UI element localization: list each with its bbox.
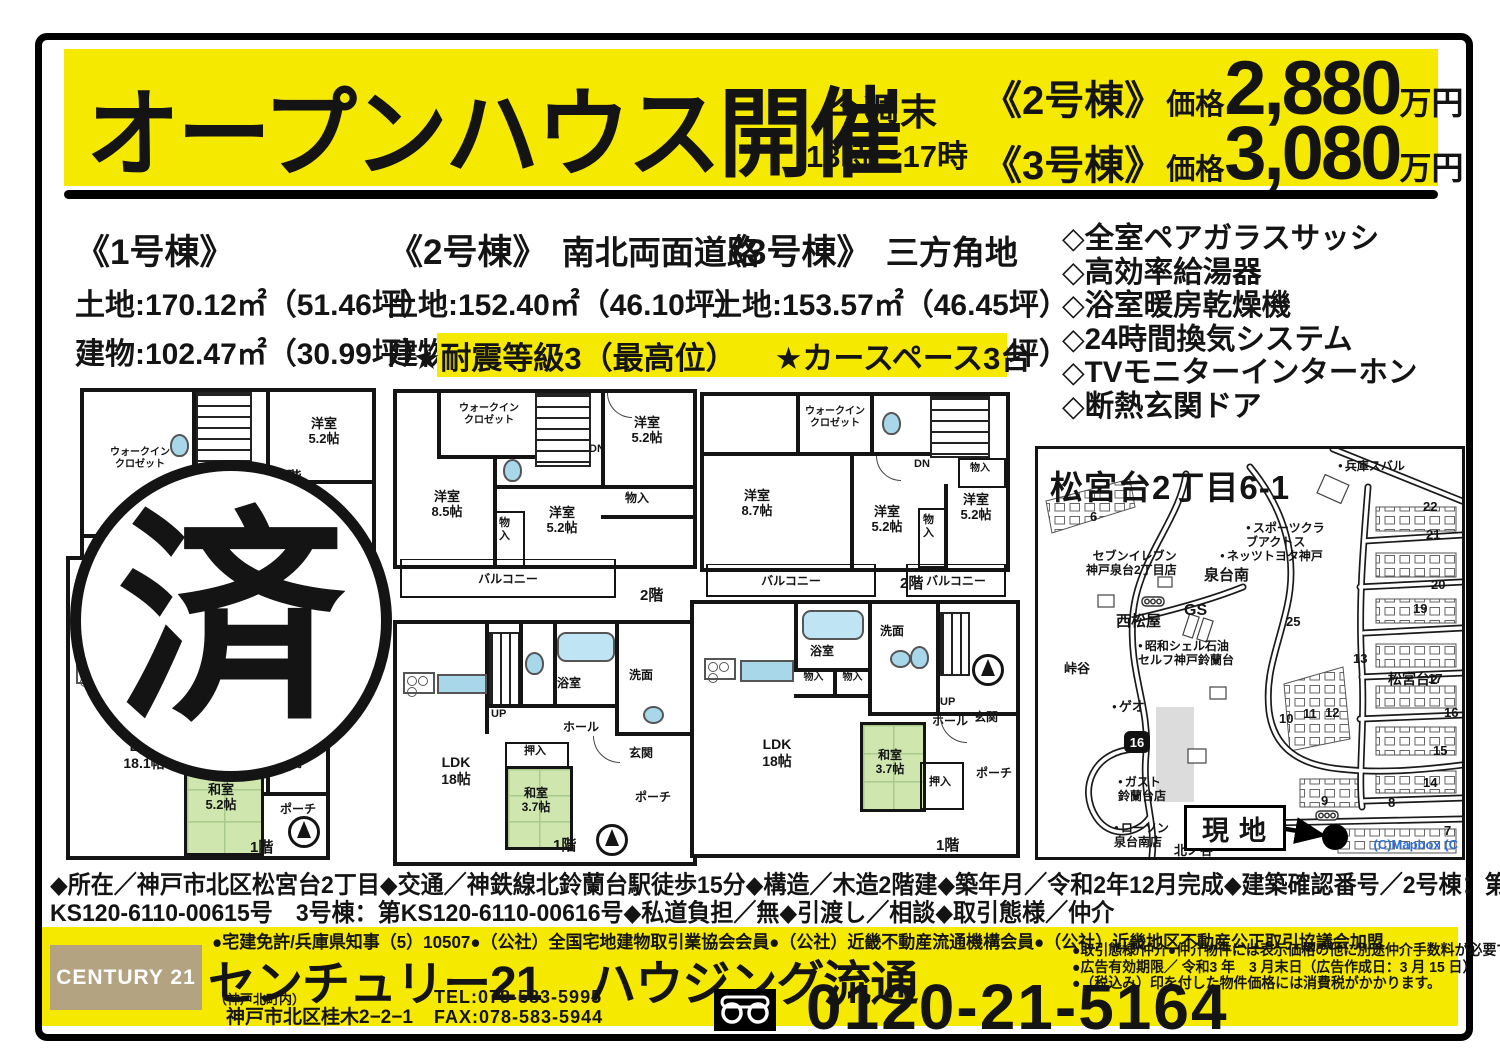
room-label: 和室 3.7帖 bbox=[505, 786, 567, 814]
room-label: 浴室 bbox=[810, 644, 834, 658]
room-label: 洋室 5.2帖 bbox=[527, 505, 597, 536]
price-row-3: 《3号棟》 価格 3,080 万円 bbox=[982, 120, 1463, 191]
room-label: UP bbox=[491, 708, 506, 721]
floor-label: 2階 bbox=[640, 584, 663, 605]
room-label: 押入 bbox=[505, 745, 565, 758]
room-label: ホール bbox=[563, 720, 599, 734]
price-unit: 万円 bbox=[1399, 78, 1463, 124]
kitchen-counter bbox=[437, 674, 487, 694]
floor-label: 1階 bbox=[250, 836, 273, 857]
room-label: バルコニー bbox=[926, 572, 986, 589]
map-block-number: 11 bbox=[1303, 706, 1317, 721]
map-poi: ガスト 鈴蘭台店 bbox=[1118, 775, 1166, 804]
building1-info: 《1号棟》 土地:170.12㎡（51.46坪） 建物:102.47㎡（30.9… bbox=[75, 224, 432, 373]
stairs-icon bbox=[489, 632, 521, 706]
room-label: 洋室 5.2帖 bbox=[946, 492, 1006, 523]
floorplan-b3-1f: 浴室 洗面 物入 物入 UP ホール LDK 18帖 和室 3.7帖 押入 玄関… bbox=[690, 600, 1020, 858]
equipment-item: ◇TVモニターインターホン bbox=[1062, 356, 1417, 390]
building1-name: 《1号棟》 bbox=[75, 224, 234, 275]
map-poi: ネッツトヨタ神戸 bbox=[1220, 549, 1323, 563]
building1-land: 土地:170.12㎡（51.46坪） bbox=[75, 280, 432, 324]
door-arc bbox=[593, 736, 620, 763]
kitchen-counter bbox=[740, 660, 794, 682]
century21-logo: CENTURY 21 bbox=[50, 945, 202, 1010]
room-label: LDK 18帖 bbox=[742, 736, 812, 769]
property-details-line2: KS120-6110-00615号 3号棟：第KS120-6110-00616号… bbox=[50, 894, 1114, 929]
wall bbox=[833, 668, 837, 694]
equipment-item: ◇高効率給湯器 bbox=[1062, 256, 1417, 290]
wall bbox=[601, 515, 693, 519]
map-block-number: 15 bbox=[1433, 743, 1447, 758]
room-label: 和室 3.7帖 bbox=[860, 748, 920, 776]
footer-note: ●取引態様/仲介●仲介物件には表示価格の他に別途仲介手数料が必要です。 bbox=[1072, 943, 1500, 960]
room-label: LDK 18帖 bbox=[421, 754, 491, 787]
wall bbox=[615, 732, 693, 736]
floor-label: 2階 bbox=[900, 572, 923, 593]
sink-icon bbox=[643, 706, 664, 724]
highlight-quake: ★耐震等級3（最高位） bbox=[413, 333, 737, 378]
sold-stamp: 済 bbox=[70, 460, 392, 782]
room-label: 洗面 bbox=[629, 668, 653, 682]
room-label: 洋室 8.7帖 bbox=[714, 488, 800, 519]
footer-note: ●広告有効期限／ 令和3 年 3 月末日（広告作成日：3 月 15 日） bbox=[1072, 960, 1500, 977]
room-label: DN bbox=[914, 458, 930, 471]
map-block-number: 8 bbox=[1388, 795, 1395, 810]
room-label: 物入 bbox=[625, 491, 649, 505]
price-building-name: 《3号棟》 bbox=[982, 133, 1164, 191]
footer: ●宅建免許/兵庫県知事（5）10507●（公社）全国宅地建物取引業協会会員●（公… bbox=[42, 927, 1458, 1026]
map-title: 松宮台2丁目6-1 bbox=[1050, 461, 1290, 509]
map-block-number: 12 bbox=[1325, 705, 1339, 720]
room-label: 玄関 bbox=[629, 746, 653, 760]
map-poi: ローソン 泉台南店 bbox=[1114, 821, 1169, 850]
map-block-number: 10 bbox=[1279, 711, 1293, 726]
toilet-icon bbox=[503, 459, 522, 482]
floor-label: 1階 bbox=[936, 834, 959, 855]
map-poi: スポーツクラ ブアクトス bbox=[1246, 521, 1325, 550]
room-label: ポーチ bbox=[635, 790, 671, 804]
room-label: 浴室 bbox=[557, 676, 581, 690]
room-label: 物入 bbox=[833, 672, 872, 684]
building3-feature: 三方角地 bbox=[886, 226, 1018, 274]
map-block-number: 14 bbox=[1423, 775, 1437, 790]
room-label: 洗面 bbox=[880, 624, 904, 638]
map-block-number: 9 bbox=[1321, 793, 1328, 808]
route-16-badge: 16 bbox=[1124, 731, 1150, 753]
stove-icon bbox=[403, 672, 435, 694]
map-block-number: 25 bbox=[1286, 614, 1300, 629]
room-label: UP bbox=[940, 696, 955, 709]
bathtub-icon bbox=[802, 610, 864, 640]
wall bbox=[794, 604, 798, 668]
compass-icon bbox=[596, 824, 628, 856]
wall bbox=[485, 704, 617, 708]
header-divider bbox=[64, 190, 1438, 199]
room-label: 洋室 5.2帖 bbox=[609, 415, 685, 446]
wall bbox=[553, 624, 557, 704]
wall bbox=[796, 396, 800, 452]
room-label: バルコニー bbox=[761, 572, 821, 589]
page-title: オープンハウス開催 bbox=[86, 55, 901, 196]
floorplan-b3-2f: DN 物入 ウォークイン クロゼット 洋室 8.7帖 洋室 5.2帖 物 入 洋… bbox=[700, 392, 1010, 572]
footer-note: ●（税込み）印を付した物件価格には消費税がかかります。 bbox=[1072, 976, 1500, 993]
footer-notes: ●取引態様/仲介●仲介物件には表示価格の他に別途仲介手数料が必要です。 ●広告有… bbox=[1072, 943, 1500, 993]
map-poi: 西松屋 bbox=[1116, 613, 1161, 631]
schedule-hours: 13時〜17時 bbox=[806, 131, 968, 176]
room-label: 物 入 bbox=[923, 514, 934, 540]
location-map: 松宮台2丁目6-1 兵庫スバル スポーツクラ ブアクトス ネッツトヨタ神戸 セブ… bbox=[1035, 446, 1465, 860]
toilet-icon bbox=[525, 652, 544, 675]
room-label: 物入 bbox=[794, 672, 833, 684]
room-label: バルコニー bbox=[478, 570, 538, 587]
equipment-item: ◇24時間換気システム bbox=[1062, 323, 1417, 357]
map-block-number: 21 bbox=[1426, 527, 1440, 542]
freedial-icon bbox=[714, 989, 776, 1031]
price-label: 価格 bbox=[1166, 81, 1224, 123]
floor-label: 1階 bbox=[553, 834, 576, 855]
fax-number: FAX:078-583-5944 bbox=[434, 1007, 603, 1028]
price-label: 価格 bbox=[1166, 146, 1224, 188]
stairs-icon bbox=[940, 612, 970, 676]
room-label: ポーチ bbox=[280, 802, 316, 816]
room-label: 押入 bbox=[922, 776, 958, 789]
schedule-weekend: 今週末 bbox=[826, 82, 937, 136]
compass-icon bbox=[288, 816, 320, 848]
equipment-item: ◇浴室暖房乾燥機 bbox=[1062, 289, 1417, 323]
room-label: 物 入 bbox=[499, 517, 510, 543]
wall bbox=[437, 455, 535, 459]
room-label: DN bbox=[589, 443, 605, 456]
equipment-item: ◇断熱玄関ドア bbox=[1062, 390, 1417, 424]
map-poi: 昭和シェル石油 セルフ神戸鈴蘭台 bbox=[1138, 639, 1234, 668]
bathtub-icon bbox=[557, 632, 615, 662]
map-block-number: 6 bbox=[1090, 509, 1097, 524]
door-arc bbox=[876, 456, 901, 481]
balcony: バルコニー bbox=[706, 564, 876, 597]
map-poi: 泉台南 bbox=[1204, 567, 1249, 585]
floorplan-b2-2f: ウォークイン クロゼット DN 洋室 5.2帖 洋室 8.5帖 物入 洋室 5.… bbox=[393, 389, 697, 569]
room-label: ウォークイン クロゼット bbox=[92, 447, 188, 471]
wall bbox=[437, 393, 441, 457]
wall bbox=[601, 393, 605, 485]
wall bbox=[870, 396, 874, 452]
wall bbox=[601, 485, 693, 489]
map-block-number: 7 bbox=[1444, 823, 1451, 838]
building3-name: 《3号棟》 bbox=[712, 224, 871, 275]
room-label: ポーチ bbox=[976, 766, 1012, 780]
room-label: 玄関 bbox=[974, 710, 998, 724]
equipment-list: ◇全室ペアガラスサッシ ◇高効率給湯器 ◇浴室暖房乾燥機 ◇24時間換気システム… bbox=[1062, 222, 1417, 423]
room-label: ウォークイン クロゼット bbox=[802, 406, 868, 430]
map-poi: セブンイレブン 神戸泉台2丁目店 bbox=[1086, 549, 1177, 578]
balcony: バルコニー bbox=[400, 559, 616, 598]
toilet-icon bbox=[910, 646, 929, 669]
map-poi: 峠谷 bbox=[1064, 661, 1090, 677]
map-block-number: 22 bbox=[1423, 499, 1437, 514]
wall bbox=[493, 485, 603, 489]
wall bbox=[704, 452, 930, 456]
equipment-item: ◇全室ペアガラスサッシ bbox=[1062, 222, 1417, 256]
map-block-number: 16 bbox=[1444, 705, 1458, 720]
room-label: ウォークイン クロゼット bbox=[441, 403, 537, 427]
room-label: 物入 bbox=[958, 463, 1002, 475]
building1-building: 建物:102.47㎡（30.99坪） bbox=[75, 329, 432, 373]
highlight-car: ★カースペース3台 bbox=[775, 333, 1032, 378]
map-poi: GS bbox=[1184, 601, 1207, 620]
site-marker-label: 現地 bbox=[1184, 805, 1286, 851]
building2-land: 土地:152.40㎡（46.10坪） bbox=[388, 280, 760, 324]
building2-name: 《2号棟》 bbox=[388, 224, 547, 275]
header-banner: オープンハウス開催 今週末 13時〜17時 《2号棟》 価格 2,880 万円 … bbox=[64, 49, 1438, 186]
building3-land: 土地:153.57㎡（46.45坪） bbox=[712, 280, 1069, 324]
stove-icon bbox=[704, 658, 736, 680]
map-block-number: 13 bbox=[1353, 651, 1367, 666]
wall bbox=[850, 452, 854, 568]
stairs-icon bbox=[930, 396, 990, 458]
room-label: 洋室 5.2帖 bbox=[284, 416, 364, 447]
map-poi: 兵庫スバル bbox=[1338, 459, 1405, 473]
wall bbox=[519, 624, 523, 704]
price-unit: 万円 bbox=[1399, 143, 1463, 189]
tel-number: TEL:078-583-5995 bbox=[434, 987, 602, 1008]
map-block-number: 20 bbox=[1431, 577, 1445, 592]
wall bbox=[615, 624, 619, 732]
sink-icon bbox=[890, 650, 911, 668]
wall bbox=[936, 604, 940, 712]
map-block-number: 19 bbox=[1413, 601, 1427, 616]
map-block-number: 17 bbox=[1428, 671, 1442, 686]
map-poi: ゲオ bbox=[1112, 699, 1145, 715]
room-label: 洋室 8.5帖 bbox=[407, 489, 487, 520]
company-address: 神戸市北区桂木2−2−1 bbox=[226, 1002, 413, 1029]
wall bbox=[794, 694, 872, 698]
toilet-icon bbox=[882, 412, 901, 435]
compass-icon bbox=[972, 654, 1004, 686]
room-label: 和室 5.2帖 bbox=[184, 782, 258, 813]
highlight-banner: ★耐震等級3（最高位） ★カースペース3台 bbox=[437, 333, 1007, 377]
room-label: 洋室 5.2帖 bbox=[856, 504, 918, 535]
stairs-icon bbox=[535, 393, 591, 467]
door-arc bbox=[940, 716, 967, 743]
map-copyright: (C)Mapbox (C bbox=[1374, 837, 1459, 852]
price-amount: 3,080 bbox=[1224, 120, 1399, 188]
map-roads bbox=[1038, 449, 1462, 857]
price-building-name: 《2号棟》 bbox=[982, 68, 1164, 126]
floorplan-b2-1f: 浴室 洗面 UP ホール 押入 和室 3.7帖 玄関 ポーチ LDK 18帖 bbox=[393, 620, 697, 866]
